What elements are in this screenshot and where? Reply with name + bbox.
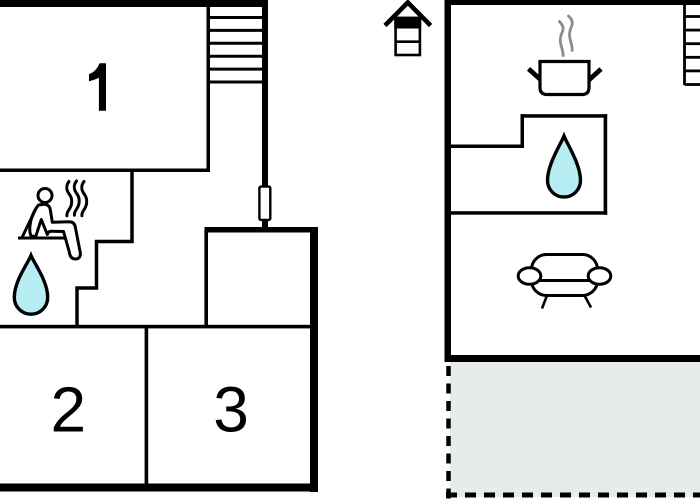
- svg-text:3: 3: [213, 374, 249, 446]
- svg-text:2: 2: [51, 374, 87, 446]
